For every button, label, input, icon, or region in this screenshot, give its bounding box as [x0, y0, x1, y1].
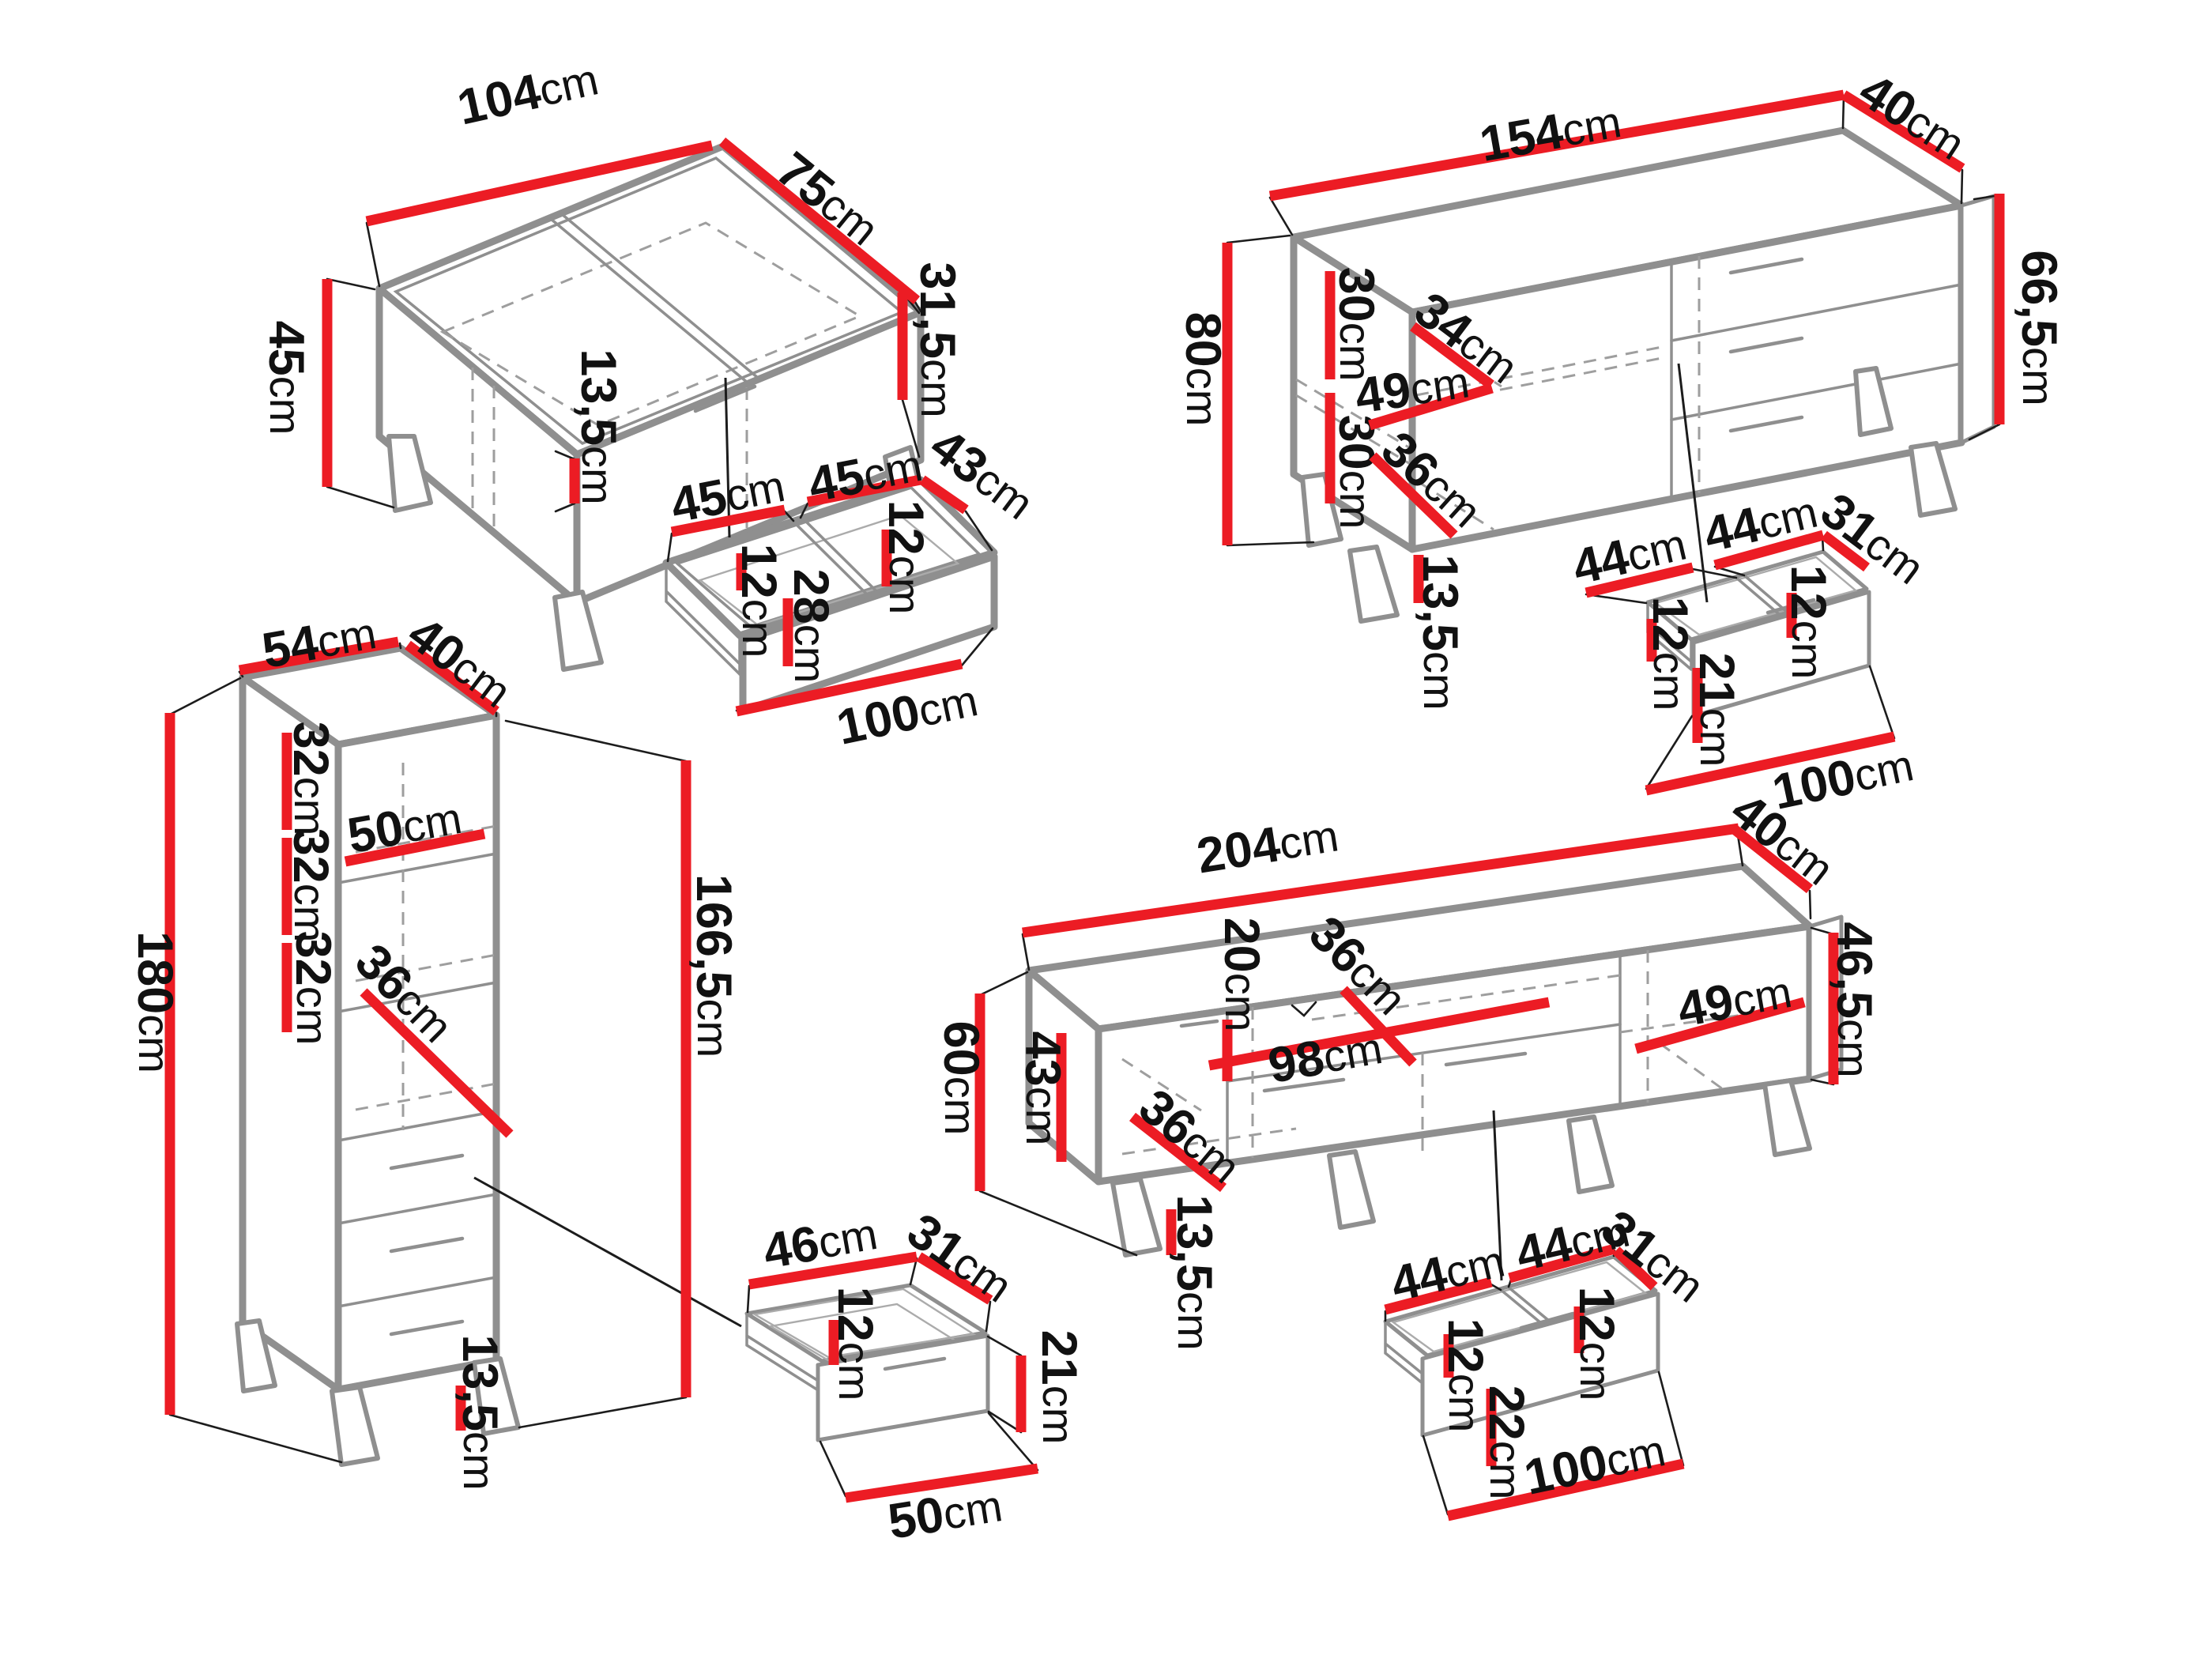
tv-stand-drawing — [980, 830, 1841, 1255]
dimension-value: 12 — [731, 544, 786, 599]
dimension-value: 45 — [804, 448, 869, 513]
dimension-value: 13,5 — [1166, 1194, 1222, 1291]
dimension-label: 180cm — [127, 931, 183, 1073]
dimension-label: 13,5cm — [452, 1334, 507, 1490]
dimension-unit: cm — [913, 359, 963, 418]
dimension-unit: cm — [1276, 810, 1342, 869]
dimension-label: 30cm — [1328, 267, 1384, 382]
dimension-value: 45 — [666, 469, 731, 534]
dimension-label: 104cm — [453, 51, 604, 135]
dimension-label: 20cm — [1214, 918, 1269, 1032]
dimension-value: 49 — [1351, 362, 1414, 424]
dimension-value: 98 — [1264, 1030, 1328, 1094]
dimension-value: 180 — [127, 931, 183, 1014]
diagram-canvas: 104cm75cm45cm31,5cm13,5cm45cm45cm43cm12c… — [0, 0, 2212, 1659]
dimension-unit: cm — [936, 1076, 986, 1136]
dimension-label: 32cm — [285, 931, 341, 1046]
dimension-label: 21cm — [1031, 1330, 1087, 1445]
dimension-label: 166,5cm — [686, 874, 741, 1058]
dimension-unit: cm — [398, 792, 465, 851]
dimension-unit: cm — [1645, 652, 1695, 711]
dimension-value: 20 — [1214, 918, 1269, 973]
furniture-dimension-diagram: 104cm75cm45cm31,5cm13,5cm45cm45cm43cm12c… — [0, 0, 2212, 1659]
dimension-value: 12 — [827, 1287, 883, 1342]
dimension-unit: cm — [1319, 1022, 1385, 1081]
dimension-value: 43 — [1015, 1031, 1070, 1087]
dimension-unit: cm — [914, 674, 982, 735]
dimension-value: 54 — [258, 615, 322, 679]
dimension-value: 154 — [1475, 104, 1567, 172]
dimension-unit: cm — [1415, 651, 1465, 711]
dimension-unit: cm — [288, 986, 338, 1046]
dimension-unit: cm — [881, 556, 931, 615]
dimension-label: 66,5cm — [2011, 250, 2067, 405]
dimension-unit: cm — [689, 999, 739, 1058]
dimension-value: 13,5 — [571, 349, 626, 446]
dimension-value: 46 — [759, 1216, 823, 1280]
dimension-unit: cm — [313, 607, 379, 666]
dimension-value: 21 — [1689, 653, 1744, 708]
dimension-unit: cm — [1018, 1087, 1068, 1146]
dimension-value: 50 — [884, 1487, 948, 1550]
dimension-label: 100cm — [1520, 1422, 1670, 1506]
dimension-unit: cm — [1601, 1424, 1669, 1485]
dimension-value: 50 — [344, 800, 408, 864]
dimension-unit: cm — [534, 54, 603, 115]
dimension-unit: cm — [814, 1208, 880, 1267]
dimension-label: 12cm — [731, 544, 786, 658]
dimension-value: 49 — [1674, 974, 1738, 1038]
dimension-label: 46,5cm — [1826, 922, 1882, 1077]
dimension-unit: cm — [940, 1480, 1006, 1539]
dimension-value: 32 — [283, 828, 338, 884]
dimension-value: 13,5 — [452, 1334, 507, 1431]
dimension-value: 100 — [1520, 1435, 1612, 1506]
dimension-unit: cm — [1692, 708, 1742, 767]
dimension-unit: cm — [1728, 966, 1795, 1025]
dimension-unit: cm — [574, 446, 624, 505]
dimension-label: 32cm — [283, 722, 338, 836]
dimension-value: 13,5 — [1412, 554, 1468, 651]
dimension-unit: cm — [455, 1431, 505, 1491]
dimension-label: 154cm — [1475, 93, 1625, 172]
dimension-value: 32 — [283, 722, 338, 777]
dimension-label: 43cm — [1015, 1031, 1070, 1146]
dimension-unit: cm — [1830, 1019, 1879, 1078]
dimension-unit: cm — [130, 1014, 180, 1073]
dimension-unit: cm — [831, 1342, 880, 1401]
dimension-value: 32 — [285, 931, 341, 986]
dimension-label: 44cm — [1568, 516, 1692, 596]
dimension-value: 12 — [1438, 1318, 1493, 1374]
dimension-label: 12cm — [878, 500, 933, 615]
dimension-label: 31,5cm — [910, 262, 965, 417]
dimension-value: 60 — [933, 1021, 989, 1076]
dimension-unit: cm — [1178, 368, 1228, 427]
dimension-label: 44cm — [1699, 484, 1823, 564]
dimension-unit: cm — [1784, 620, 1833, 680]
dimension-label: 13,5cm — [571, 349, 626, 504]
dimension-value: 12 — [878, 500, 933, 556]
dimension-unit: cm — [734, 599, 784, 658]
dimension-label: 60cm — [933, 1021, 989, 1136]
dimension-label: 12cm — [1569, 1287, 1624, 1401]
dimension-value: 104 — [453, 64, 546, 136]
dimension-value: 21 — [1031, 1330, 1087, 1386]
dimension-value: 12 — [1781, 565, 1836, 620]
dimension-label: 13,5cm — [1166, 1194, 1222, 1350]
dimension-unit: cm — [786, 624, 836, 684]
dimension-label: 12cm — [1781, 565, 1836, 680]
dimension-value: 28 — [783, 569, 838, 624]
dimension-value: 100 — [832, 684, 925, 756]
dimension-unit: cm — [262, 376, 311, 435]
dimension-unit: cm — [1332, 470, 1381, 530]
dimension-label: 30cm — [1328, 415, 1384, 530]
dimension-label: 13,5cm — [1412, 554, 1468, 710]
dimension-label: 45cm — [258, 321, 314, 435]
dimension-unit: cm — [1034, 1386, 1084, 1445]
dimension-unit: cm — [286, 777, 336, 836]
dimension-label: 204cm — [1193, 807, 1343, 884]
dimension-unit: cm — [1217, 973, 1267, 1032]
dimension-value: 12 — [1642, 597, 1698, 652]
dimension-value: 22 — [1479, 1386, 1534, 1441]
dimension-unit: cm — [1572, 1342, 1622, 1401]
dimension-unit: cm — [1558, 96, 1625, 155]
dimension-label: 80cm — [1175, 312, 1230, 427]
dimension-value: 80 — [1175, 312, 1230, 368]
leader-line — [474, 1178, 741, 1326]
dimension-unit: cm — [2014, 347, 2064, 406]
dimension-value: 46,5 — [1826, 922, 1882, 1019]
dimension-label: 12cm — [827, 1287, 883, 1401]
dimension-value: 166,5 — [686, 874, 741, 999]
dimension-label: 28cm — [783, 569, 838, 684]
dimension-value: 12 — [1569, 1287, 1624, 1342]
dimension-unit: cm — [1407, 356, 1472, 414]
dimension-value: 204 — [1193, 816, 1284, 884]
dimension-label: 32cm — [283, 828, 338, 943]
dimension-value: 45 — [258, 321, 314, 376]
dimension-value: 30 — [1328, 267, 1384, 322]
dimension-label: 21cm — [1689, 653, 1744, 767]
dimension-value: 31,5 — [910, 262, 965, 359]
dimension-value: 66,5 — [2011, 250, 2067, 347]
dimension-unit: cm — [1170, 1291, 1219, 1351]
